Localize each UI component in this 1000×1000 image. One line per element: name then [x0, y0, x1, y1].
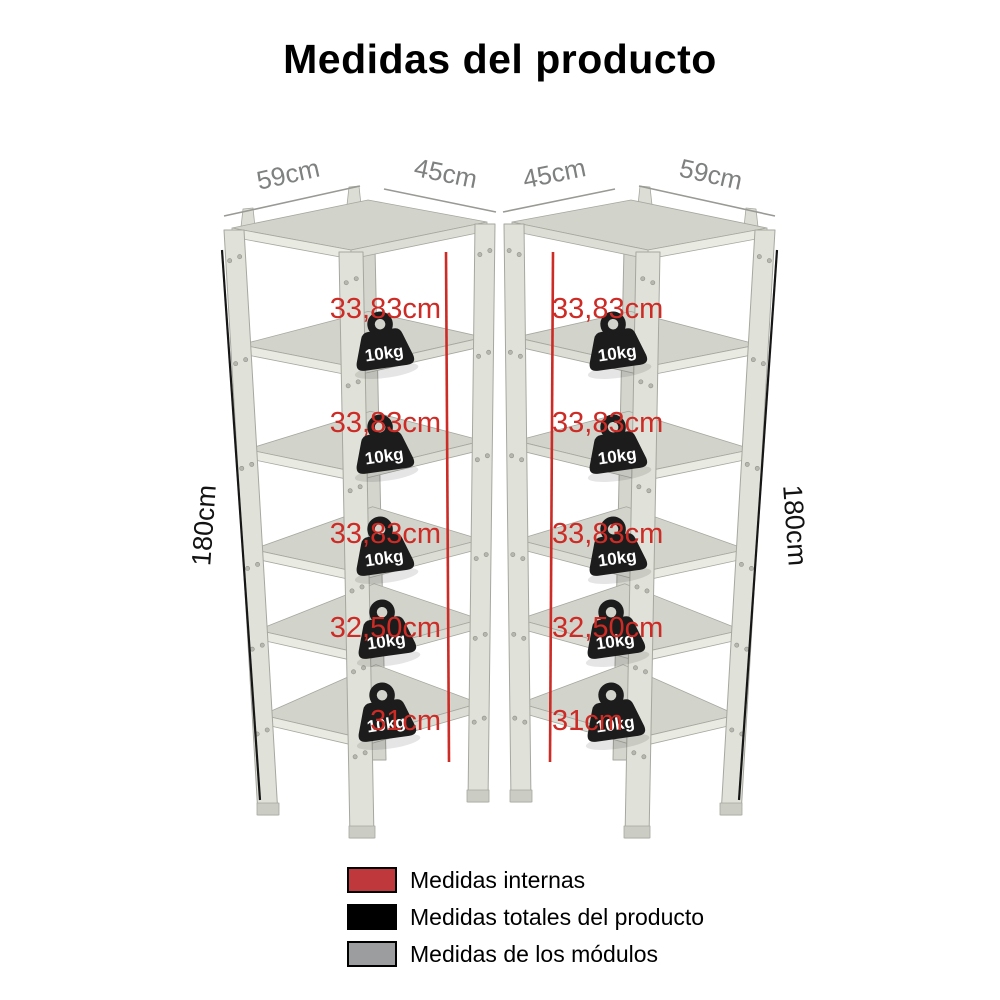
screw-dot: [363, 751, 367, 755]
screw-dot: [651, 281, 655, 285]
screw-dot: [250, 462, 254, 466]
screw-dot: [517, 252, 521, 256]
legend-item-total: Medidas totales del producto: [347, 903, 704, 931]
screw-dot: [745, 462, 749, 466]
screw-dot: [520, 458, 524, 462]
depth-dim-label: 45cm: [520, 152, 588, 194]
screw-dot: [647, 489, 651, 493]
screw-dot: [633, 666, 637, 670]
screw-dot: [755, 466, 759, 470]
product-dimensions-diagram: 10kg 10kg 10kg 10kg 10kg 10kg 10kg 10kg …: [0, 0, 1000, 1000]
shelf-post: [224, 230, 278, 815]
screw-dot: [730, 728, 734, 732]
internal-dim-label: 32,50cm: [552, 612, 663, 644]
internal-dim-label: 32,50cm: [330, 612, 441, 644]
screw-dot: [749, 566, 753, 570]
screw-dot: [475, 458, 479, 462]
screw-dot: [472, 720, 476, 724]
shelf-foot: [624, 826, 650, 838]
shelf-foot: [349, 826, 375, 838]
screw-dot: [483, 632, 487, 636]
screw-dot: [512, 632, 516, 636]
screw-dot: [485, 454, 489, 458]
legend-label: Medidas totales del producto: [410, 904, 704, 931]
screw-dot: [510, 454, 514, 458]
screw-dot: [643, 670, 647, 674]
screw-dot: [350, 589, 354, 593]
internal-dim-label: 33,83cm: [330, 518, 441, 550]
internal-dim-label: 31cm: [370, 705, 441, 737]
shelf-foot: [720, 803, 742, 815]
screw-dot: [645, 589, 649, 593]
screw-dot: [637, 485, 641, 489]
screw-dot: [354, 277, 358, 281]
screw-dot: [240, 466, 244, 470]
shelf-post: [504, 224, 531, 802]
internal-dim-label: 33,83cm: [330, 293, 441, 325]
legend-swatch-red: [347, 867, 397, 893]
screw-dot: [346, 384, 350, 388]
screw-dot: [477, 354, 481, 358]
screw-dot: [649, 384, 653, 388]
screw-dot: [507, 248, 511, 252]
shelf-post: [468, 224, 495, 802]
screw-dot: [487, 350, 491, 354]
screw-dot: [518, 354, 522, 358]
screw-dot: [739, 562, 743, 566]
screw-dot: [245, 566, 249, 570]
screw-dot: [360, 585, 364, 589]
shelf-foot: [467, 790, 489, 802]
shelf-foot: [257, 803, 279, 815]
screw-dot: [641, 277, 645, 281]
screw-dot: [265, 728, 269, 732]
screw-dot: [513, 716, 517, 720]
legend-swatch-black: [347, 904, 397, 930]
internal-dim-label: 31cm: [552, 705, 623, 737]
internal-dim-label: 33,83cm: [552, 407, 663, 439]
screw-dot: [351, 670, 355, 674]
screw-dot: [522, 636, 526, 640]
screw-dot: [228, 259, 232, 263]
screw-dot: [767, 259, 771, 263]
screw-dot: [484, 552, 488, 556]
internal-dim-label: 33,83cm: [552, 518, 663, 550]
internal-dim-line: [550, 252, 553, 762]
legend-item-internal: Medidas internas: [347, 866, 704, 894]
shelf-unit-left: [224, 186, 495, 838]
screw-dot: [632, 751, 636, 755]
shelf-foot: [510, 790, 532, 802]
screw-dot: [745, 647, 749, 651]
screw-dot: [348, 489, 352, 493]
screw-dot: [508, 350, 512, 354]
internal-dim-label: 33,83cm: [330, 407, 441, 439]
screw-dot: [234, 362, 238, 366]
screw-dot: [356, 380, 360, 384]
screw-dot: [757, 255, 761, 259]
legend-swatch-gray: [347, 941, 397, 967]
internal-dim-line: [446, 252, 449, 762]
height-dim-label: 180cm: [777, 484, 813, 567]
screw-dot: [511, 552, 515, 556]
screw-dot: [255, 562, 259, 566]
width-dim-label: 59cm: [254, 153, 323, 196]
screw-dot: [250, 647, 254, 651]
screw-dot: [478, 252, 482, 256]
width-dim-label: 59cm: [677, 153, 746, 196]
screw-dot: [353, 755, 357, 759]
screw-dot: [521, 556, 525, 560]
shelf-post: [721, 230, 775, 815]
internal-dim-label: 33,83cm: [552, 293, 663, 325]
screw-dot: [473, 636, 477, 640]
screw-dot: [639, 380, 643, 384]
screw-dot: [474, 556, 478, 560]
screw-dot: [244, 358, 248, 362]
screw-dot: [488, 248, 492, 252]
screw-dot: [260, 643, 264, 647]
legend-label: Medidas internas: [410, 867, 585, 894]
screw-dot: [735, 643, 739, 647]
screw-dot: [761, 362, 765, 366]
depth-dim-label: 45cm: [412, 152, 480, 194]
screw-dot: [344, 281, 348, 285]
screw-dot: [238, 255, 242, 259]
screw-dot: [635, 585, 639, 589]
height-dim-label: 180cm: [186, 484, 222, 567]
legend-item-modules: Medidas de los módulos: [347, 940, 704, 968]
screw-dot: [482, 716, 486, 720]
screw-dot: [642, 755, 646, 759]
legend-label: Medidas de los módulos: [410, 941, 658, 968]
screw-dot: [523, 720, 527, 724]
screw-dot: [751, 358, 755, 362]
screw-dot: [358, 485, 362, 489]
legend: Medidas internas Medidas totales del pro…: [347, 866, 704, 968]
